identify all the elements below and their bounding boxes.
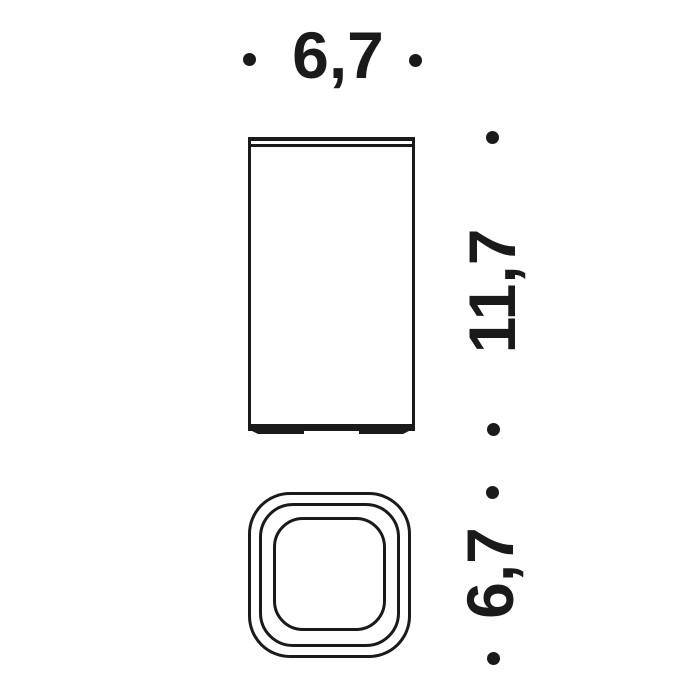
dim-width-label: 6,7 [292,22,384,88]
front-view-rim-line [251,144,412,147]
technical-drawing-canvas: 6,7 11,7 6,7 [0,0,700,700]
dim-depth-dot-top [486,486,499,499]
dim-depth-dot-bottom [487,652,500,665]
dim-height-dot-bottom [487,423,500,436]
front-view-outline [248,137,415,431]
top-view-inner-edge [273,517,386,631]
dim-height-label: 11,7 [459,229,525,354]
dim-width-dot-left [243,53,256,66]
dim-depth-label: 6,7 [457,527,523,619]
front-view-foot-right [359,431,409,434]
dim-height-dot-top [486,131,499,144]
front-view-foot-left [252,431,304,434]
dim-width-dot-right [409,54,422,67]
